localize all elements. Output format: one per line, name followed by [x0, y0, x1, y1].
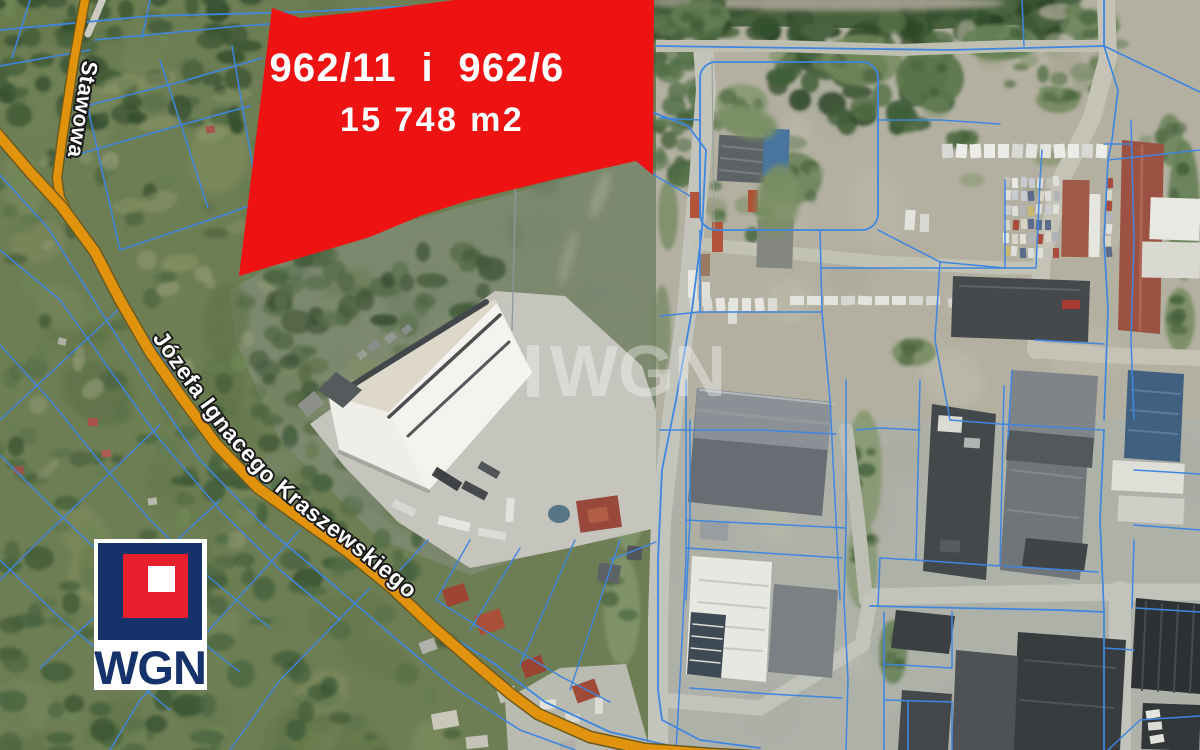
svg-text:WGN: WGN	[94, 641, 206, 694]
svg-text:15 748 m2: 15 748 m2	[340, 101, 524, 139]
svg-text:WGN: WGN	[550, 332, 726, 412]
svg-text:962/11 i 962/6: 962/11 i 962/6	[269, 46, 564, 90]
